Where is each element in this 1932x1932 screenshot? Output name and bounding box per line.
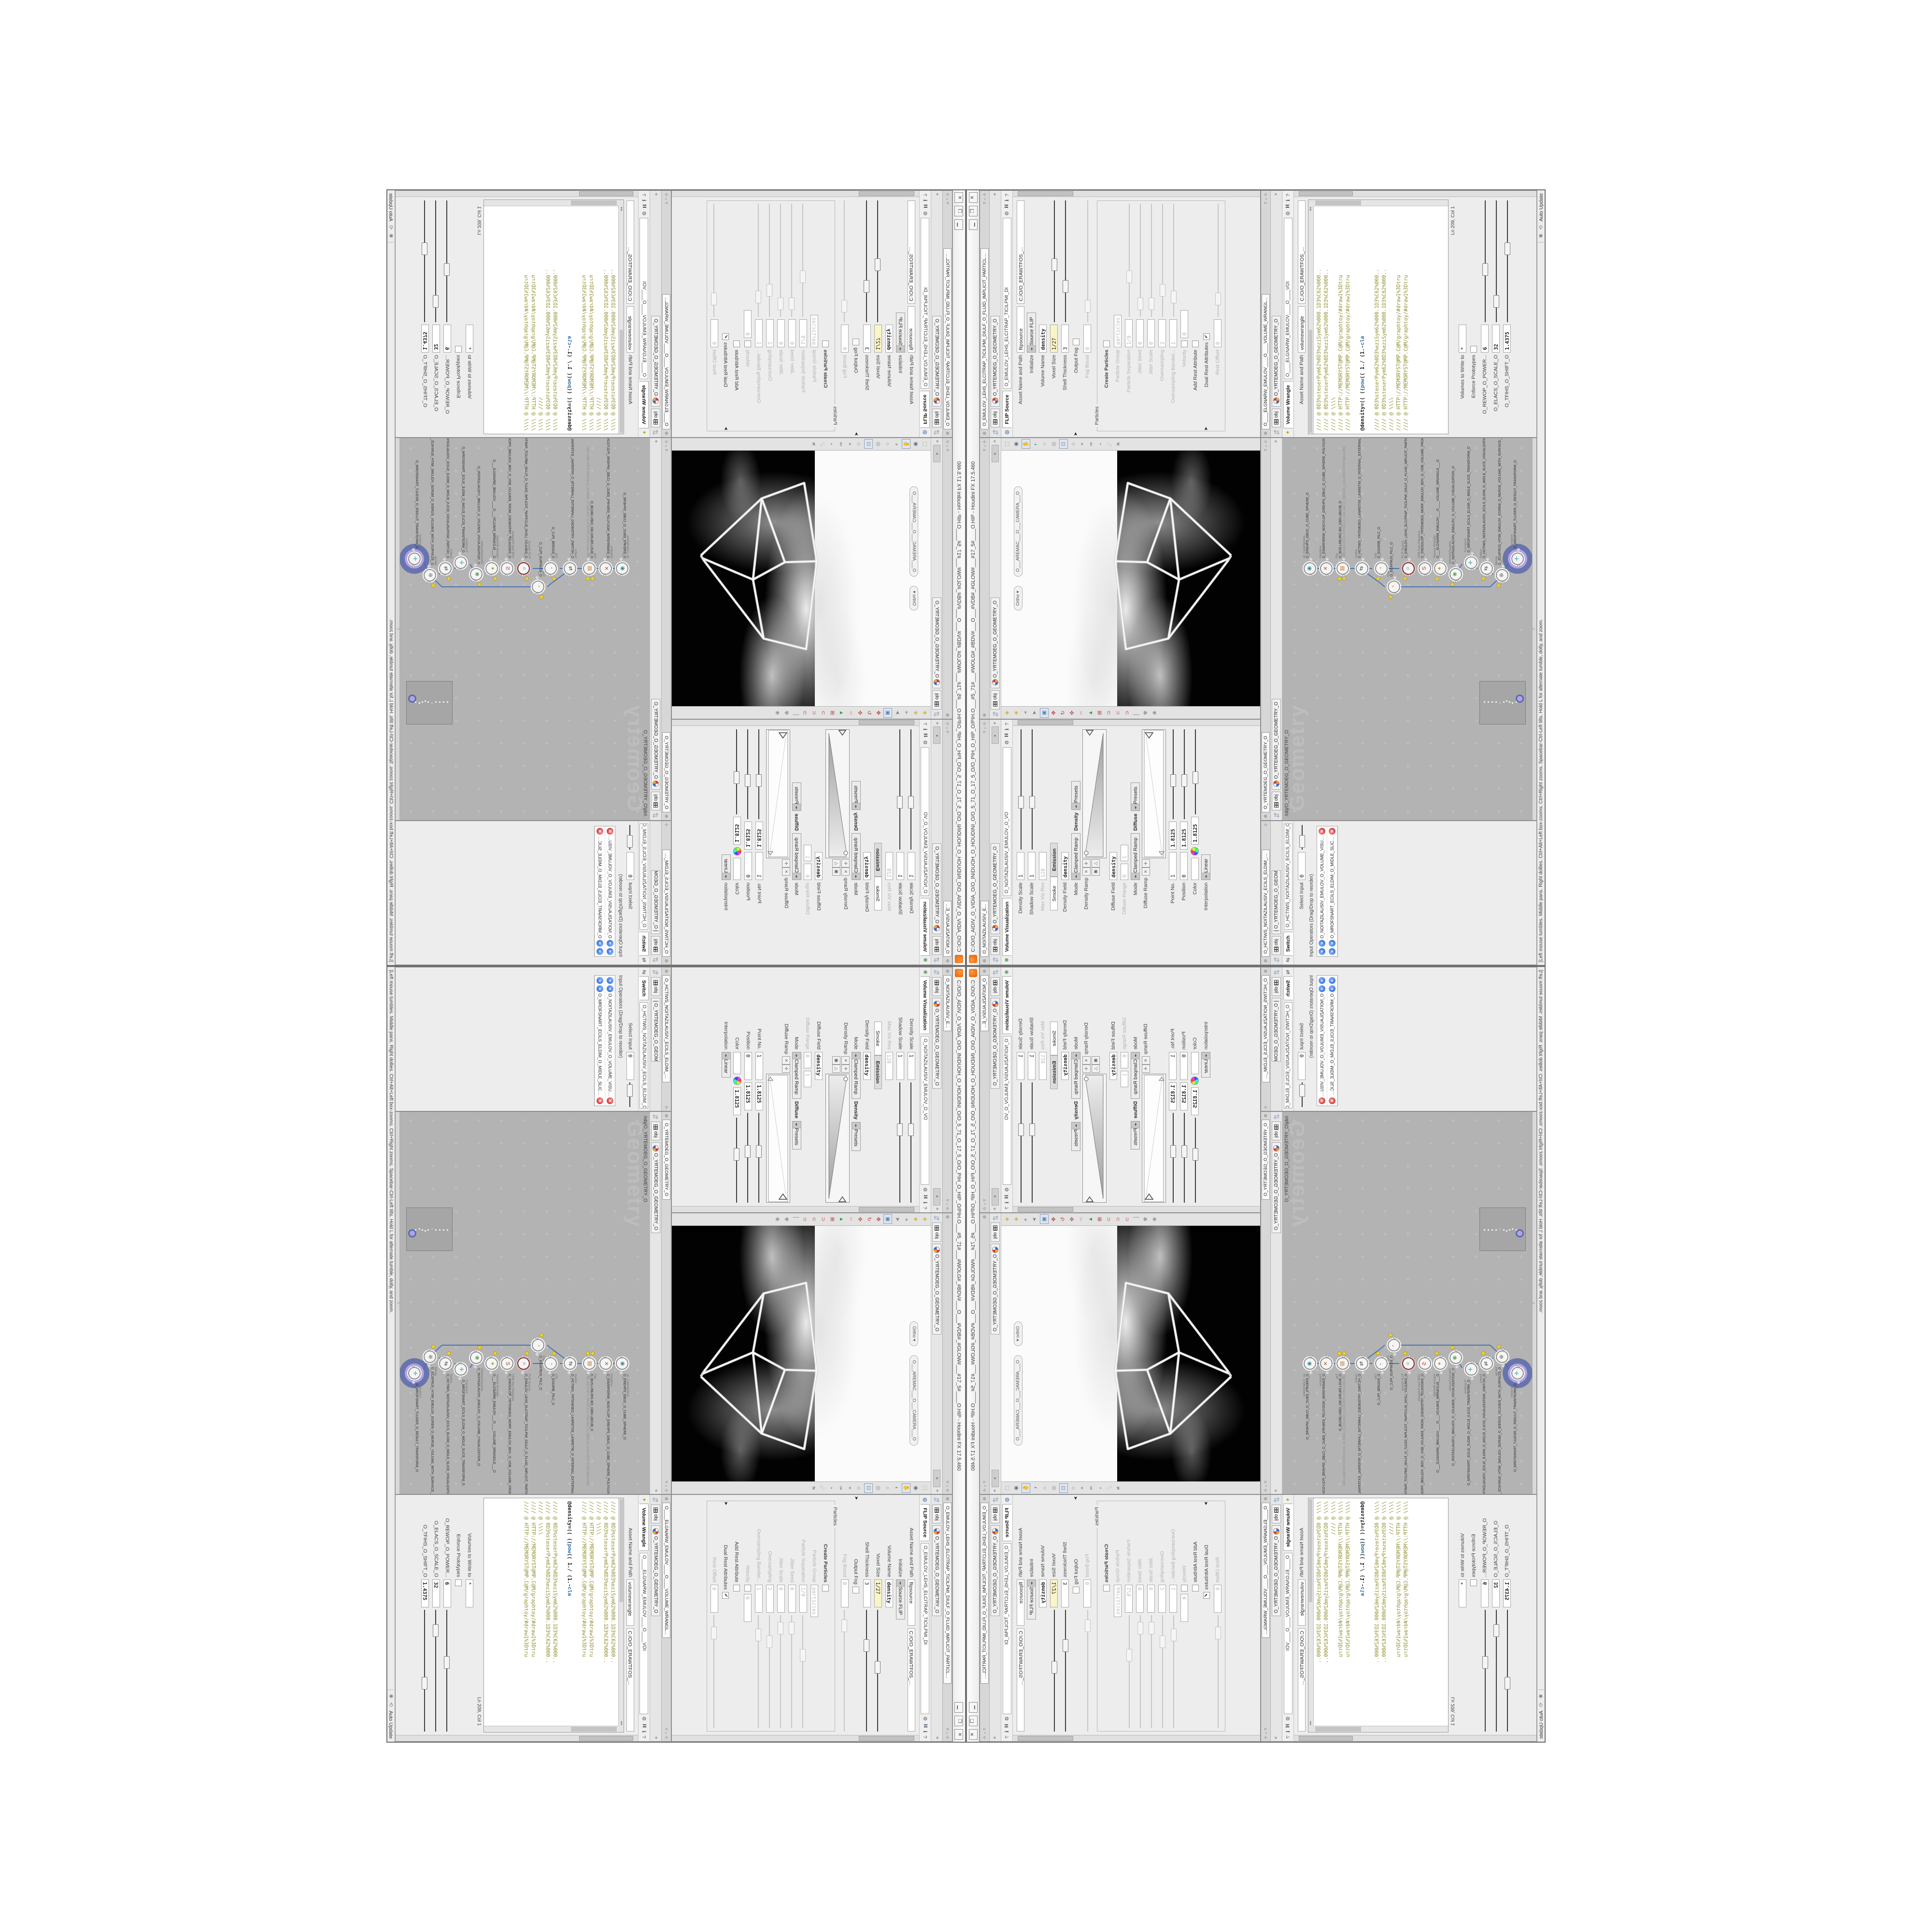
node-clip-2[interactable]: ◔ bbox=[1388, 581, 1400, 593]
gear-icon[interactable]: ⚙ bbox=[1004, 1187, 1010, 1192]
fog-boost-field[interactable]: 0 bbox=[1083, 325, 1091, 353]
node-flag-dot[interactable] bbox=[1403, 577, 1407, 581]
dot-icon[interactable]: • bbox=[1097, 1484, 1105, 1492]
pin-icon[interactable]: ⌖ bbox=[653, 193, 659, 196]
snap-prim-icon[interactable]: ⊃ bbox=[801, 1215, 809, 1223]
frame-icon[interactable]: ⊡ bbox=[864, 439, 873, 449]
obj-context-chip[interactable]: obj bbox=[651, 936, 660, 955]
question-icon[interactable]: ? bbox=[1004, 193, 1010, 197]
network-scrollbar[interactable]: ⠿ bbox=[396, 438, 400, 820]
position-field[interactable]: 0 bbox=[1180, 852, 1188, 880]
network-scrollbar[interactable]: ⠿ bbox=[1532, 1112, 1536, 1494]
initialize-dropdown[interactable]: ◂▸Source FLIP bbox=[896, 313, 905, 352]
remove-input-button[interactable]: ✕ bbox=[1319, 828, 1325, 835]
diffuse-ramp-widget[interactable] bbox=[766, 729, 790, 858]
obj-context-chip[interactable]: obj bbox=[932, 977, 941, 996]
zoom-icon[interactable]: ◎ bbox=[874, 1484, 882, 1492]
geometry-breadcrumb-chip[interactable]: O_YRTEMOEG_O_GEOMETRY_O bbox=[651, 1525, 660, 1616]
geometry-breadcrumb-chip[interactable]: O_YRTEMOEG_O_GEOMETRY_O bbox=[651, 998, 660, 1062]
obj-context-chip[interactable]: obj bbox=[991, 690, 1000, 709]
density-scale-field-slider[interactable] bbox=[1017, 729, 1024, 850]
flag-icon[interactable]: ⚑ bbox=[809, 1484, 817, 1492]
voxel-size-field-slider[interactable] bbox=[875, 1610, 882, 1732]
houdini-help-icon[interactable]: H bbox=[641, 1723, 647, 1728]
pin-icon[interactable]: ⌖ bbox=[934, 193, 940, 196]
pivot-icon[interactable]: ⌖ bbox=[1079, 440, 1086, 448]
node-flag-dot[interactable] bbox=[1389, 595, 1392, 599]
geometry-breadcrumb-chip[interactable]: O_YRTEMOEG_O_GEOMETRY_O bbox=[651, 699, 660, 790]
houdini-help-icon[interactable]: H bbox=[1285, 1723, 1291, 1728]
viewport-right-toolbar[interactable]: ⬚◉✋◐○◎⊡⌂⌖✑•☄⚑ bbox=[1001, 438, 1260, 451]
point-no-field-slider[interactable] bbox=[1169, 1113, 1177, 1203]
node-merge[interactable]: ⊕ bbox=[424, 1350, 436, 1363]
diffuse-ramp-widget[interactable] bbox=[766, 1074, 790, 1203]
oversampling-field[interactable]: 2 bbox=[767, 1585, 774, 1613]
node-flag-dot[interactable] bbox=[591, 577, 595, 581]
voxel-size-field[interactable]: 1/27 bbox=[1050, 325, 1058, 353]
collapse-icon[interactable]: ▿ bbox=[664, 1728, 669, 1731]
pane-tab-bar[interactable]: ⊛ O_NOITAZILAUSIV_E... ▿ ▫ ⊹ bbox=[980, 720, 990, 965]
shift-field-slider[interactable] bbox=[422, 1610, 429, 1732]
cut-icon[interactable]: ✂ bbox=[1078, 709, 1085, 717]
scale-tool-icon[interactable]: ✜ bbox=[1068, 1215, 1076, 1223]
select-input-field-slider[interactable] bbox=[1298, 1082, 1306, 1107]
network-canvas[interactable]: ++++++++++++++++++++++++++++++++++++++++… bbox=[399, 1112, 650, 1494]
node-clip-2[interactable]: ◔ bbox=[532, 1339, 544, 1351]
geometry-breadcrumb-chip[interactable]: O_YRTEMOEG_O_GEOMETRY_O bbox=[1272, 316, 1281, 407]
axis-icon[interactable]: ▲ bbox=[838, 1215, 845, 1223]
pane-tab-wrangle[interactable]: O____ELGNARW_EMULOV____O____VOLUME_WRANG… bbox=[1262, 294, 1270, 429]
node-result-transform[interactable]: ✛ bbox=[1511, 553, 1524, 565]
initialize-dropdown[interactable]: ◂▸Source FLIP bbox=[1027, 1579, 1036, 1619]
node-flag-dot[interactable] bbox=[1450, 582, 1454, 586]
rest-offset-field-slider[interactable] bbox=[1214, 204, 1222, 317]
gear-icon[interactable]: ⚙ bbox=[641, 211, 647, 216]
nav-arrows-icon[interactable]: ⇵ bbox=[992, 429, 999, 435]
cross-icon[interactable]: ⊹ bbox=[1263, 1735, 1268, 1739]
minimize-button[interactable]: ▁ bbox=[969, 1702, 978, 1713]
jitter-scale-field[interactable]: 0 bbox=[778, 319, 785, 347]
diffuse-mode-dropdown[interactable]: ◂▸Clamped Ramp bbox=[792, 1052, 801, 1099]
move-up-button[interactable]: ◂ bbox=[597, 977, 603, 984]
cook-hand-icon[interactable]: ✱ bbox=[1538, 234, 1544, 238]
volviz-name-field[interactable]: O_NOITAZILAUSIV_EMULOV_O_VO bbox=[1003, 1036, 1011, 1185]
parameter-toolbar[interactable]: ◍ FLIP Source O_EMULOV_LEHS_ELCITRAP_TIC… bbox=[919, 191, 931, 437]
node-volume-visualization[interactable]: ❋ bbox=[1449, 1351, 1462, 1364]
pane-path-bar[interactable]: ⇵ obj O_YRTEMOEG_O_GEOMETRY_O ▸ ⌖ bbox=[931, 438, 942, 719]
dot-icon[interactable]: • bbox=[827, 1484, 835, 1492]
auto-update-selector[interactable]: Auto Update bbox=[1538, 1711, 1544, 1739]
camera-icon[interactable]: ◉ bbox=[1012, 440, 1020, 448]
nav-arrows-icon[interactable]: ⇵ bbox=[653, 969, 659, 975]
scale-tool-icon[interactable]: ✜ bbox=[856, 709, 864, 717]
velocity-field[interactable]: 0 bbox=[744, 310, 752, 338]
question-icon[interactable]: ? bbox=[923, 1206, 928, 1210]
move-down-button[interactable]: ◂ bbox=[1319, 940, 1325, 947]
camera-icon[interactable]: ◉ bbox=[1012, 1484, 1020, 1492]
vex-snippet-editor[interactable]: ◂ ▸ //// @ 0D3%steserPym62%0D3%eziSym62%… bbox=[483, 199, 624, 434]
back-icon[interactable]: ◂ bbox=[1022, 709, 1029, 717]
pane-path-bar[interactable]: ⇵ obj O_YRTEMOEG_O_GEOMETRY_O ⌖ bbox=[650, 1112, 661, 1494]
play-strip[interactable]: ▸ bbox=[992, 445, 999, 462]
velocity-field[interactable]: 0 bbox=[744, 1594, 752, 1622]
play-strip[interactable]: ▸ bbox=[992, 1188, 999, 1206]
parameter-toolbar[interactable]: ❋ Volume Visualization O_NOITAZILAUSIV_E… bbox=[1001, 967, 1013, 1212]
wrangle-type-tab[interactable]: Volume Wrangle bbox=[639, 1504, 649, 1550]
pane-tab-bar[interactable]: ⊛ O_YRTEMOEG_O_GEOMETRY_O ▿ ▫ ⊹ bbox=[661, 438, 671, 820]
nav-arrows-icon[interactable]: ⇵ bbox=[934, 957, 940, 963]
network-canvas[interactable]: ++++++++++++++++++++++++++++++++++++++++… bbox=[399, 438, 650, 820]
color-field-value[interactable]: 1.8125 bbox=[734, 817, 741, 845]
particle-separation-field-slider[interactable] bbox=[800, 204, 808, 317]
flag-icon[interactable]: ⚑ bbox=[809, 440, 817, 448]
scale-field-slider[interactable] bbox=[1492, 200, 1500, 322]
pane-tab-bar[interactable]: ⊛ O_EMULOV_LEHS_ELCITRAP_TICILPMI_DIULF_… bbox=[980, 1495, 990, 1741]
obj-context-chip[interactable]: obj bbox=[991, 1222, 1000, 1241]
snap-edge-icon[interactable]: ⊂ bbox=[810, 709, 818, 717]
node-flag-dot[interactable] bbox=[1337, 577, 1341, 581]
enforce-prototypes-checkbox[interactable] bbox=[455, 1579, 462, 1586]
wrangle-name-field[interactable]: O____ELGNARW_EMULOV____O____VOI bbox=[1284, 218, 1293, 379]
scale-field[interactable]: 32 bbox=[433, 1579, 440, 1607]
pane-tab-bar[interactable]: ⊛ O_EMULOV_LEHS_ELCITRAP_TICILPMI_DIULF_… bbox=[942, 191, 952, 437]
nav-arrows-icon[interactable]: ⇵ bbox=[1273, 969, 1280, 975]
color-field-slider[interactable] bbox=[1191, 1118, 1199, 1203]
jitter-scale-field-slider[interactable] bbox=[1147, 1615, 1155, 1728]
node-file[interactable]: ▤ bbox=[583, 562, 596, 575]
ramp-buttons[interactable]: ✕✛▣△ bbox=[1082, 860, 1100, 876]
restore-button[interactable]: ❐ bbox=[969, 206, 978, 216]
info-icon[interactable]: ℹ bbox=[923, 1201, 928, 1204]
diffuse-range-field[interactable]: 0 bbox=[804, 1052, 812, 1068]
volume-name-field[interactable]: density bbox=[1039, 325, 1047, 353]
particle-separation-field-slider[interactable] bbox=[800, 1615, 808, 1728]
parameter-toolbar[interactable]: ◍ FLIP Source O_EMULOV_LEHS_ELCITRAP_TIC… bbox=[1001, 1495, 1013, 1741]
pane-tab-bar[interactable]: ⊛ O_NOITAZILAUSIV_E... ▿ ▫ ⊹ bbox=[942, 967, 952, 1212]
cut-icon[interactable]: ✂ bbox=[1078, 1215, 1085, 1223]
gear-icon[interactable]: ⚙ bbox=[1285, 1716, 1291, 1721]
power-field-slider[interactable] bbox=[1481, 200, 1489, 322]
collapse-icon[interactable]: ▿ bbox=[945, 731, 950, 733]
wand-icon[interactable]: ☄ bbox=[1106, 440, 1114, 448]
particle-separation-field[interactable]: 1/9 bbox=[800, 1585, 808, 1613]
houdini-help-icon[interactable]: H bbox=[641, 204, 647, 209]
snap-prim-icon[interactable]: ⊃ bbox=[1123, 1215, 1131, 1223]
rest-offset-field[interactable]: 0 bbox=[711, 1585, 719, 1613]
density-scale-field-slider[interactable] bbox=[908, 1082, 916, 1203]
cross-icon[interactable]: ⊹ bbox=[664, 1489, 669, 1492]
rest-offset-field[interactable]: 0 bbox=[1214, 319, 1222, 347]
pane-scrollbar[interactable] bbox=[1294, 191, 1536, 197]
add-rest-attribute-checkbox[interactable] bbox=[1192, 341, 1199, 347]
flip-name-field[interactable]: O_EMULOV_LEHS_ELCITRAP_TICILPMI_DI bbox=[921, 218, 930, 389]
initialize-dropdown[interactable]: ◂▸Source FLIP bbox=[896, 1579, 905, 1619]
asset-path-field[interactable]: C:/O/O_ERAWTFOS_... bbox=[1017, 200, 1024, 304]
obj-context-chip[interactable]: obj bbox=[932, 409, 941, 427]
obj-context-chip[interactable]: obj bbox=[651, 1505, 660, 1523]
pane-tab-network[interactable]: O_YRTEMOEG_O_GEOMETRY_O bbox=[662, 733, 670, 813]
move-up-button[interactable]: ◂ bbox=[1319, 977, 1325, 984]
voxel-size-field[interactable]: 1/27 bbox=[875, 1579, 882, 1607]
pane-path-bar[interactable]: ⇵ obj O_YRTEMOEG_O_GEOMETRY_O ⌖ bbox=[931, 1495, 942, 1741]
pin-icon[interactable]: ⌖ bbox=[653, 1736, 659, 1739]
oversampling-bandwidth-field[interactable]: 1 bbox=[1169, 319, 1177, 347]
voxel-size-field-slider[interactable] bbox=[1050, 200, 1058, 322]
scale-field[interactable]: 32 bbox=[1492, 325, 1500, 353]
particle-group-field[interactable]: particles bbox=[1114, 315, 1122, 347]
particle-group-field[interactable]: particles bbox=[811, 315, 819, 347]
obj-context-chip[interactable]: obj bbox=[991, 1505, 1000, 1523]
parameter-toolbar[interactable]: ❋ Volume Visualization O_NOITAZILAUSIV_E… bbox=[1001, 720, 1013, 965]
switch-name-field[interactable]: O_HCTIWS_NOITAZILAUSIV_ECILS_ELDIM_O_ bbox=[1284, 1002, 1293, 1108]
orbit-icon[interactable]: ○ bbox=[1041, 440, 1049, 448]
move-up-button[interactable]: ◂ bbox=[597, 948, 603, 955]
geometry-breadcrumb-chip[interactable]: O_YRTEMOEG_O_GEOMETRY_O bbox=[991, 1244, 1000, 1335]
position-field-value[interactable]: 1.8125 bbox=[1180, 1082, 1188, 1110]
asset-name-field[interactable]: flipsource bbox=[1017, 1579, 1024, 1626]
asset-name-field[interactable]: volumewrangle bbox=[1298, 306, 1306, 353]
select-input-field[interactable]: 0 bbox=[627, 852, 635, 880]
pivot-icon[interactable]: ⌖ bbox=[1079, 1484, 1086, 1492]
dot-icon[interactable]: • bbox=[827, 440, 835, 448]
parameter-toolbar[interactable]: ✦ Volume Wrangle O____ELGNARW_EMULOV____… bbox=[1282, 1495, 1294, 1741]
dolly-icon[interactable]: ◐ bbox=[1032, 1484, 1039, 1492]
diffuse-field[interactable]: density bbox=[815, 852, 823, 880]
select-input-field[interactable]: 0 bbox=[1298, 1052, 1306, 1080]
divider-icon[interactable]: ▏ bbox=[1133, 709, 1140, 717]
scale-field[interactable]: 32 bbox=[433, 325, 440, 353]
geometry-breadcrumb-chip[interactable]: O_YRTEMOEG_O_GEOMETRY_O bbox=[932, 998, 941, 1089]
particle-separation-field-slider[interactable] bbox=[1125, 204, 1133, 317]
pane-tab-bar[interactable]: ⊛ O_NOITAZILAUSIV_E... ▿ ▫ ⊹ bbox=[942, 720, 952, 965]
position-field-slider[interactable] bbox=[745, 1113, 753, 1203]
node-file[interactable]: ▤ bbox=[1336, 1357, 1349, 1370]
winmini-icon[interactable]: ▫ bbox=[982, 1732, 987, 1733]
particle-group-field[interactable]: particles bbox=[1114, 1585, 1122, 1617]
interpolation-dropdown[interactable]: ◂▸Linear bbox=[1201, 854, 1210, 880]
fog-boost-field-slider[interactable] bbox=[1083, 200, 1091, 322]
handles-icon[interactable]: ▣ bbox=[883, 708, 892, 718]
emission-tab[interactable]: Emission bbox=[1050, 1055, 1058, 1089]
code-vscrollbar[interactable] bbox=[484, 1726, 619, 1732]
smoke-tab[interactable]: Smoke bbox=[875, 877, 882, 910]
gear-icon[interactable]: ⚙ bbox=[1004, 739, 1010, 745]
vex-snippet-editor[interactable]: ◂ ▸ //// @ 0D3%steserPym62%0D3%eziSym62%… bbox=[1308, 1498, 1449, 1733]
close-button[interactable]: ✕ bbox=[955, 1729, 964, 1740]
question-icon[interactable]: ? bbox=[641, 1735, 647, 1739]
view-tool-icon[interactable]: ❀ bbox=[1151, 709, 1159, 717]
pane-path-bar[interactable]: ⇵ obj O_YRTEMOEG_O_GEOMETRY_O ▸ ⌖ bbox=[931, 720, 942, 965]
viewport-right-toolbar[interactable]: ⬚◉✋◐○◎⊡⌂⌖✑•☄⚑ bbox=[672, 1481, 931, 1494]
vex-snippet-editor[interactable]: ◂ ▸ //// @ 0D3%steserPym62%0D3%eziSym62%… bbox=[1308, 199, 1449, 434]
winmini-icon[interactable]: ▫ bbox=[945, 199, 950, 200]
parameter-toolbar[interactable]: ⇆ Switch O_HCTIWS_NOITAZILAUSIV_ECILS_EL… bbox=[1282, 967, 1294, 1111]
pane-tab-bar[interactable]: ⊛ O_HCTIWS_NOITAZILAUSIV_ECILS_ELDIM_O_M… bbox=[1261, 821, 1271, 965]
select-arrow-icon[interactable]: ➤ bbox=[894, 709, 901, 717]
node-volume-wrangle[interactable]: ✦ bbox=[1434, 1357, 1447, 1370]
pane-scrollbar[interactable] bbox=[396, 191, 638, 197]
node-polywire[interactable]: ✕ bbox=[599, 1357, 612, 1370]
oversampling-field[interactable]: 2 bbox=[1158, 1585, 1166, 1613]
nav-arrows-icon[interactable]: ⇵ bbox=[934, 1215, 940, 1221]
network-minimap[interactable] bbox=[406, 1207, 453, 1251]
obj-context-chip[interactable]: obj bbox=[651, 1122, 660, 1140]
nav-arrows-icon[interactable]: ⇵ bbox=[1273, 1114, 1280, 1120]
title-bar[interactable]: C:/O/O_AIDIV_O_VIDIA_O/O_INIDUOH_O_HOUDI… bbox=[952, 967, 965, 1742]
remove-input-button[interactable]: ✕ bbox=[1319, 1097, 1325, 1104]
cross-icon[interactable]: ⊹ bbox=[945, 1207, 950, 1210]
add-rest-attribute-checkbox[interactable] bbox=[734, 1585, 740, 1591]
cross-icon[interactable]: ⊹ bbox=[982, 1489, 987, 1492]
input-operator-row[interactable]: ◂◂O_NOITAZILAUSIV_EMULOV_O_VOLUME_VISUAL… bbox=[605, 826, 615, 956]
oversampling-field[interactable]: 2 bbox=[767, 319, 774, 347]
nav-arrows-icon[interactable]: ⇵ bbox=[1273, 1497, 1280, 1503]
pane-path-bar[interactable]: ⇵ obj O_YRTEMOEG_O_GEOMETRY_O ⌖ bbox=[650, 438, 661, 820]
winmini-icon[interactable]: ▫ bbox=[664, 445, 669, 447]
cross-icon[interactable]: ⊹ bbox=[664, 823, 669, 827]
info-icon[interactable]: ℹ bbox=[1285, 199, 1291, 202]
cross-icon[interactable]: ⊹ bbox=[945, 1735, 950, 1739]
node-polywire[interactable]: ✕ bbox=[1320, 1357, 1333, 1370]
cross-icon[interactable]: ⊹ bbox=[982, 193, 987, 197]
diffuse-mode-dropdown[interactable]: ◂▸Clamped Ramp bbox=[1131, 1052, 1140, 1099]
node-flag-dot[interactable] bbox=[493, 577, 497, 581]
node-flag-dot[interactable] bbox=[525, 577, 529, 581]
node-merge[interactable]: ⊕ bbox=[1496, 569, 1508, 582]
shadow-scale-field-slider[interactable] bbox=[897, 729, 905, 850]
title-bar[interactable]: C:/O/O_AIDIV_O_VIDIA_O/O_INIDUOH_O_HOUDI… bbox=[967, 190, 980, 965]
pane-path-bar[interactable]: ⇵ obj O_YRTEMOEG_O_GEOMETRY_O ▸ ⌖ bbox=[990, 438, 1001, 719]
question-icon[interactable]: ? bbox=[641, 193, 647, 197]
flip-name-field[interactable]: O_EMULOV_LEHS_ELCITRAP_TICILPMI_DI bbox=[1003, 218, 1011, 389]
pane-path-bar[interactable]: ⇵ obj O_YRTEMOEG_O_GEOMETRY_O ▸ ⌖ bbox=[990, 1213, 1001, 1494]
asset-name-field[interactable]: flipsource bbox=[908, 306, 916, 353]
ramp-buttons[interactable]: ✕✛ bbox=[782, 1056, 790, 1072]
nav-arrows-icon[interactable]: ⇵ bbox=[992, 1497, 999, 1503]
view-tool-icon[interactable]: ❀ bbox=[1151, 1215, 1159, 1223]
pin-icon[interactable]: ⌖ bbox=[992, 193, 998, 196]
obj-context-chip[interactable]: obj bbox=[1272, 409, 1281, 427]
node-switch-vis[interactable]: ⇆ bbox=[1480, 1357, 1493, 1370]
winmini-icon[interactable]: ▫ bbox=[945, 1485, 950, 1487]
viewport-left-toolbar[interactable]: ◈◈◂➤▣✥↻✜✂▲⊞⊃⊂⊃▏✾❀ bbox=[672, 1213, 931, 1226]
point-no-field[interactable]: 1 bbox=[756, 852, 764, 880]
auto-update-selector[interactable]: Auto Update bbox=[1538, 193, 1544, 221]
pin-icon[interactable]: ⌖ bbox=[992, 440, 998, 443]
pan-hand-icon[interactable]: ✋ bbox=[1022, 439, 1030, 449]
viewport-right-toolbar[interactable]: ⬚◉✋◐○◎⊡⌂⌖✑•☄⚑ bbox=[1001, 1481, 1260, 1494]
play-strip[interactable]: ▸ bbox=[933, 1188, 940, 1206]
node-file[interactable]: ▤ bbox=[1336, 562, 1349, 575]
close-button[interactable]: ✕ bbox=[969, 1729, 978, 1740]
power-field[interactable]: 6 bbox=[444, 1579, 452, 1607]
voxel-size-field[interactable]: 1/27 bbox=[875, 325, 882, 353]
position-field-slider[interactable] bbox=[1180, 1113, 1188, 1203]
color-swatch[interactable] bbox=[1191, 858, 1199, 880]
collapse-icon[interactable]: ▿ bbox=[1263, 449, 1268, 451]
switch-type-tab[interactable]: Switch bbox=[639, 932, 649, 956]
velocity-field[interactable]: 0 bbox=[1180, 310, 1188, 338]
asset-path-field[interactable]: C:/O/O_ERAWTFOS_... bbox=[908, 1628, 916, 1732]
pane-path-bar[interactable]: ⇵ obj O_YRTEMOEG_O_GEOMETRY_O ▸ ⌖ bbox=[990, 967, 1001, 1212]
cross-icon[interactable]: ⊹ bbox=[945, 193, 950, 197]
node-flag-dot[interactable] bbox=[447, 577, 451, 581]
recycle-icon[interactable]: ⟲ bbox=[388, 225, 394, 229]
node-switch-vis[interactable]: ⇆ bbox=[439, 1357, 452, 1370]
shadow-scale-field-slider[interactable] bbox=[1028, 1082, 1036, 1203]
jitter-seed-field-slider[interactable] bbox=[1136, 1615, 1144, 1728]
move-up-button[interactable]: ◂ bbox=[607, 977, 613, 984]
layout-icon[interactable]: ⬚ bbox=[921, 440, 929, 448]
play-strip[interactable]: ▸ bbox=[933, 1470, 940, 1487]
pane-tab-switch[interactable]: O_HCTIWS_NOITAZILAUSIV_ECILS_ELDIM_O_MID… bbox=[662, 850, 670, 957]
density-scale-field[interactable]: 1 bbox=[1017, 1052, 1024, 1080]
color-wheel-icon[interactable] bbox=[1191, 847, 1199, 855]
houdini-help-icon[interactable]: H bbox=[923, 204, 928, 209]
diffuse-field[interactable]: density bbox=[815, 1052, 823, 1080]
obj-context-chip[interactable]: obj bbox=[932, 1222, 941, 1241]
nav-arrows-icon[interactable]: ⇵ bbox=[992, 1215, 999, 1221]
node-merge[interactable]: ⊕ bbox=[1496, 1350, 1508, 1363]
jitter-scale-field-slider[interactable] bbox=[1147, 204, 1155, 317]
volumes-to-write-field[interactable]: * bbox=[466, 1579, 474, 1607]
node-transform-slice[interactable]: ✛ bbox=[1465, 556, 1477, 569]
geometry-breadcrumb-chip[interactable]: O_YRTEMOEG_O_GEOMETRY_O bbox=[1272, 998, 1281, 1062]
pin-icon[interactable]: ⌖ bbox=[934, 722, 940, 724]
close-button[interactable]: ✕ bbox=[955, 192, 964, 203]
input-operator-row[interactable]: ◂◂O_NOITAZILAUSIV_EMULOV_O_VOLUME_VISUAL… bbox=[1317, 976, 1327, 1106]
diffuse-range-field[interactable]: 1 bbox=[1121, 1071, 1128, 1087]
pen-icon[interactable]: ✑ bbox=[1088, 440, 1095, 448]
flag-icon[interactable]: ⚑ bbox=[1115, 440, 1123, 448]
pane-scrollbar[interactable] bbox=[1013, 1206, 1260, 1212]
shade-textured-icon[interactable]: ◈ bbox=[912, 1215, 920, 1223]
pan-hand-icon[interactable]: ✋ bbox=[1022, 1483, 1030, 1493]
shift-field-slider[interactable] bbox=[1503, 200, 1511, 322]
color-field-slider[interactable] bbox=[734, 729, 741, 814]
node-flag-dot[interactable] bbox=[431, 583, 435, 587]
voxel-size-field[interactable]: 1/27 bbox=[1050, 1579, 1058, 1607]
fog-boost-field[interactable]: 0 bbox=[841, 1579, 849, 1607]
max-vis-res-field[interactable]: 128 bbox=[886, 852, 894, 880]
node-vdb-from-polygons[interactable]: S bbox=[501, 562, 513, 575]
particle-group-field[interactable]: particles bbox=[811, 1585, 819, 1617]
rest-offset-field[interactable]: 0 bbox=[1214, 1585, 1222, 1613]
home-view-icon[interactable]: ⌂ bbox=[1069, 1484, 1077, 1492]
info-icon[interactable]: ℹ bbox=[641, 1730, 647, 1733]
play-strip[interactable]: ▸ bbox=[992, 1470, 999, 1487]
pane-path-bar[interactable]: ⇵ obj O_YRTEMOEG_O_GEOMETRY_O ⌖ bbox=[1271, 191, 1282, 437]
volume-name-field[interactable]: density bbox=[1039, 1579, 1047, 1607]
info-icon[interactable]: ℹ bbox=[1004, 1730, 1010, 1733]
pane-scrollbar[interactable] bbox=[1013, 191, 1260, 197]
gear-icon[interactable]: ⚙ bbox=[1004, 211, 1010, 216]
info-icon[interactable]: ℹ bbox=[1004, 1201, 1010, 1204]
nav-arrows-icon[interactable]: ⇵ bbox=[653, 957, 659, 963]
obj-context-chip[interactable]: obj bbox=[932, 936, 941, 955]
position-field[interactable]: 0 bbox=[1180, 1052, 1188, 1080]
viewport-canvas[interactable]: Ortho ▾ O___AREMAC___O___CAMERA___O bbox=[1001, 451, 1260, 707]
gear-icon[interactable]: ⚙ bbox=[923, 1187, 928, 1192]
create-particles-checkbox[interactable] bbox=[823, 341, 829, 347]
pin-icon[interactable]: ⌖ bbox=[653, 440, 659, 443]
info-icon[interactable]: ℹ bbox=[923, 728, 928, 731]
oversampling-bandwidth-field[interactable]: 1 bbox=[755, 1585, 763, 1613]
oversampling-bandwidth-field[interactable]: 1 bbox=[755, 319, 763, 347]
wrangle-type-tab[interactable]: Volume Wrangle bbox=[1283, 1504, 1293, 1550]
asset-name-field[interactable]: volumewrangle bbox=[627, 306, 635, 353]
geometry-breadcrumb-chip[interactable]: O_YRTEMOEG_O_GEOMETRY_O bbox=[991, 1525, 1000, 1616]
